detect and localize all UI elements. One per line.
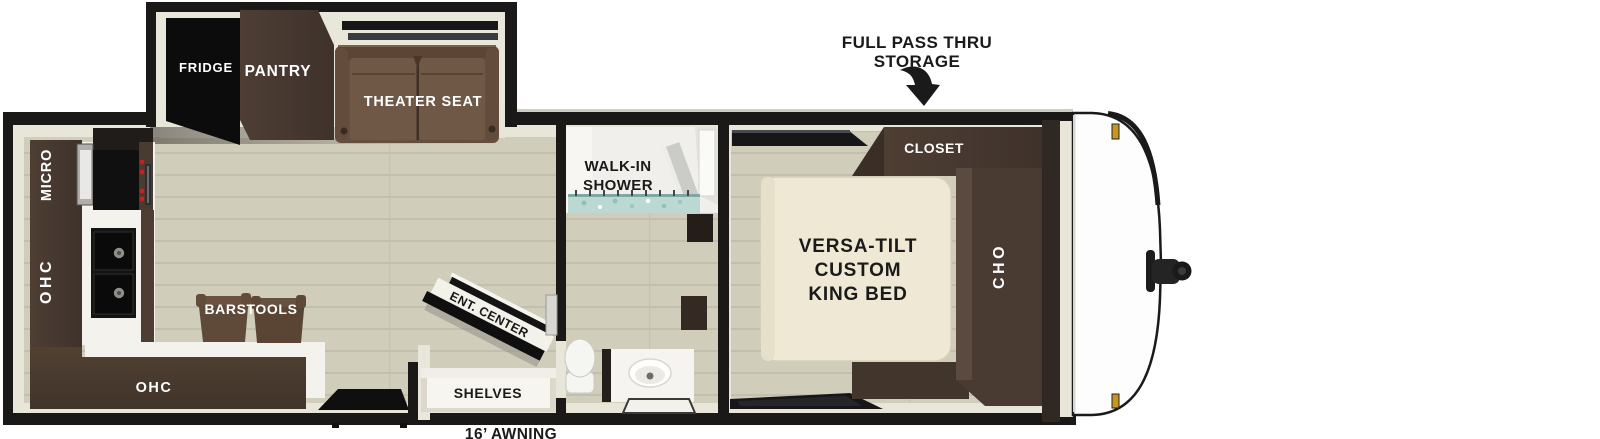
svg-text:CLOSET: CLOSET — [904, 140, 964, 156]
svg-text:FRIDGE: FRIDGE — [179, 60, 233, 75]
svg-text:SHELVES: SHELVES — [454, 385, 523, 401]
svg-text:OHC: OHC — [136, 380, 173, 396]
svg-text:BARSTOOLS: BARSTOOLS — [204, 301, 297, 317]
svg-text:FULL PASS THRU: FULL PASS THRU — [842, 33, 992, 52]
svg-text:16’ AWNING: 16’ AWNING — [465, 426, 557, 439]
svg-text:OHC: OHC — [38, 258, 55, 304]
svg-text:VERSA-TILT: VERSA-TILT — [799, 236, 917, 257]
svg-text:KING BED: KING BED — [808, 284, 907, 305]
svg-text:MICRO: MICRO — [39, 149, 55, 201]
svg-text:CUSTOM: CUSTOM — [815, 260, 902, 281]
svg-text:WALK-IN: WALK-IN — [585, 158, 652, 175]
svg-text:CHO: CHO — [991, 243, 1008, 289]
svg-text:THEATER SEAT: THEATER SEAT — [364, 94, 483, 110]
svg-text:PANTRY: PANTRY — [245, 63, 312, 80]
